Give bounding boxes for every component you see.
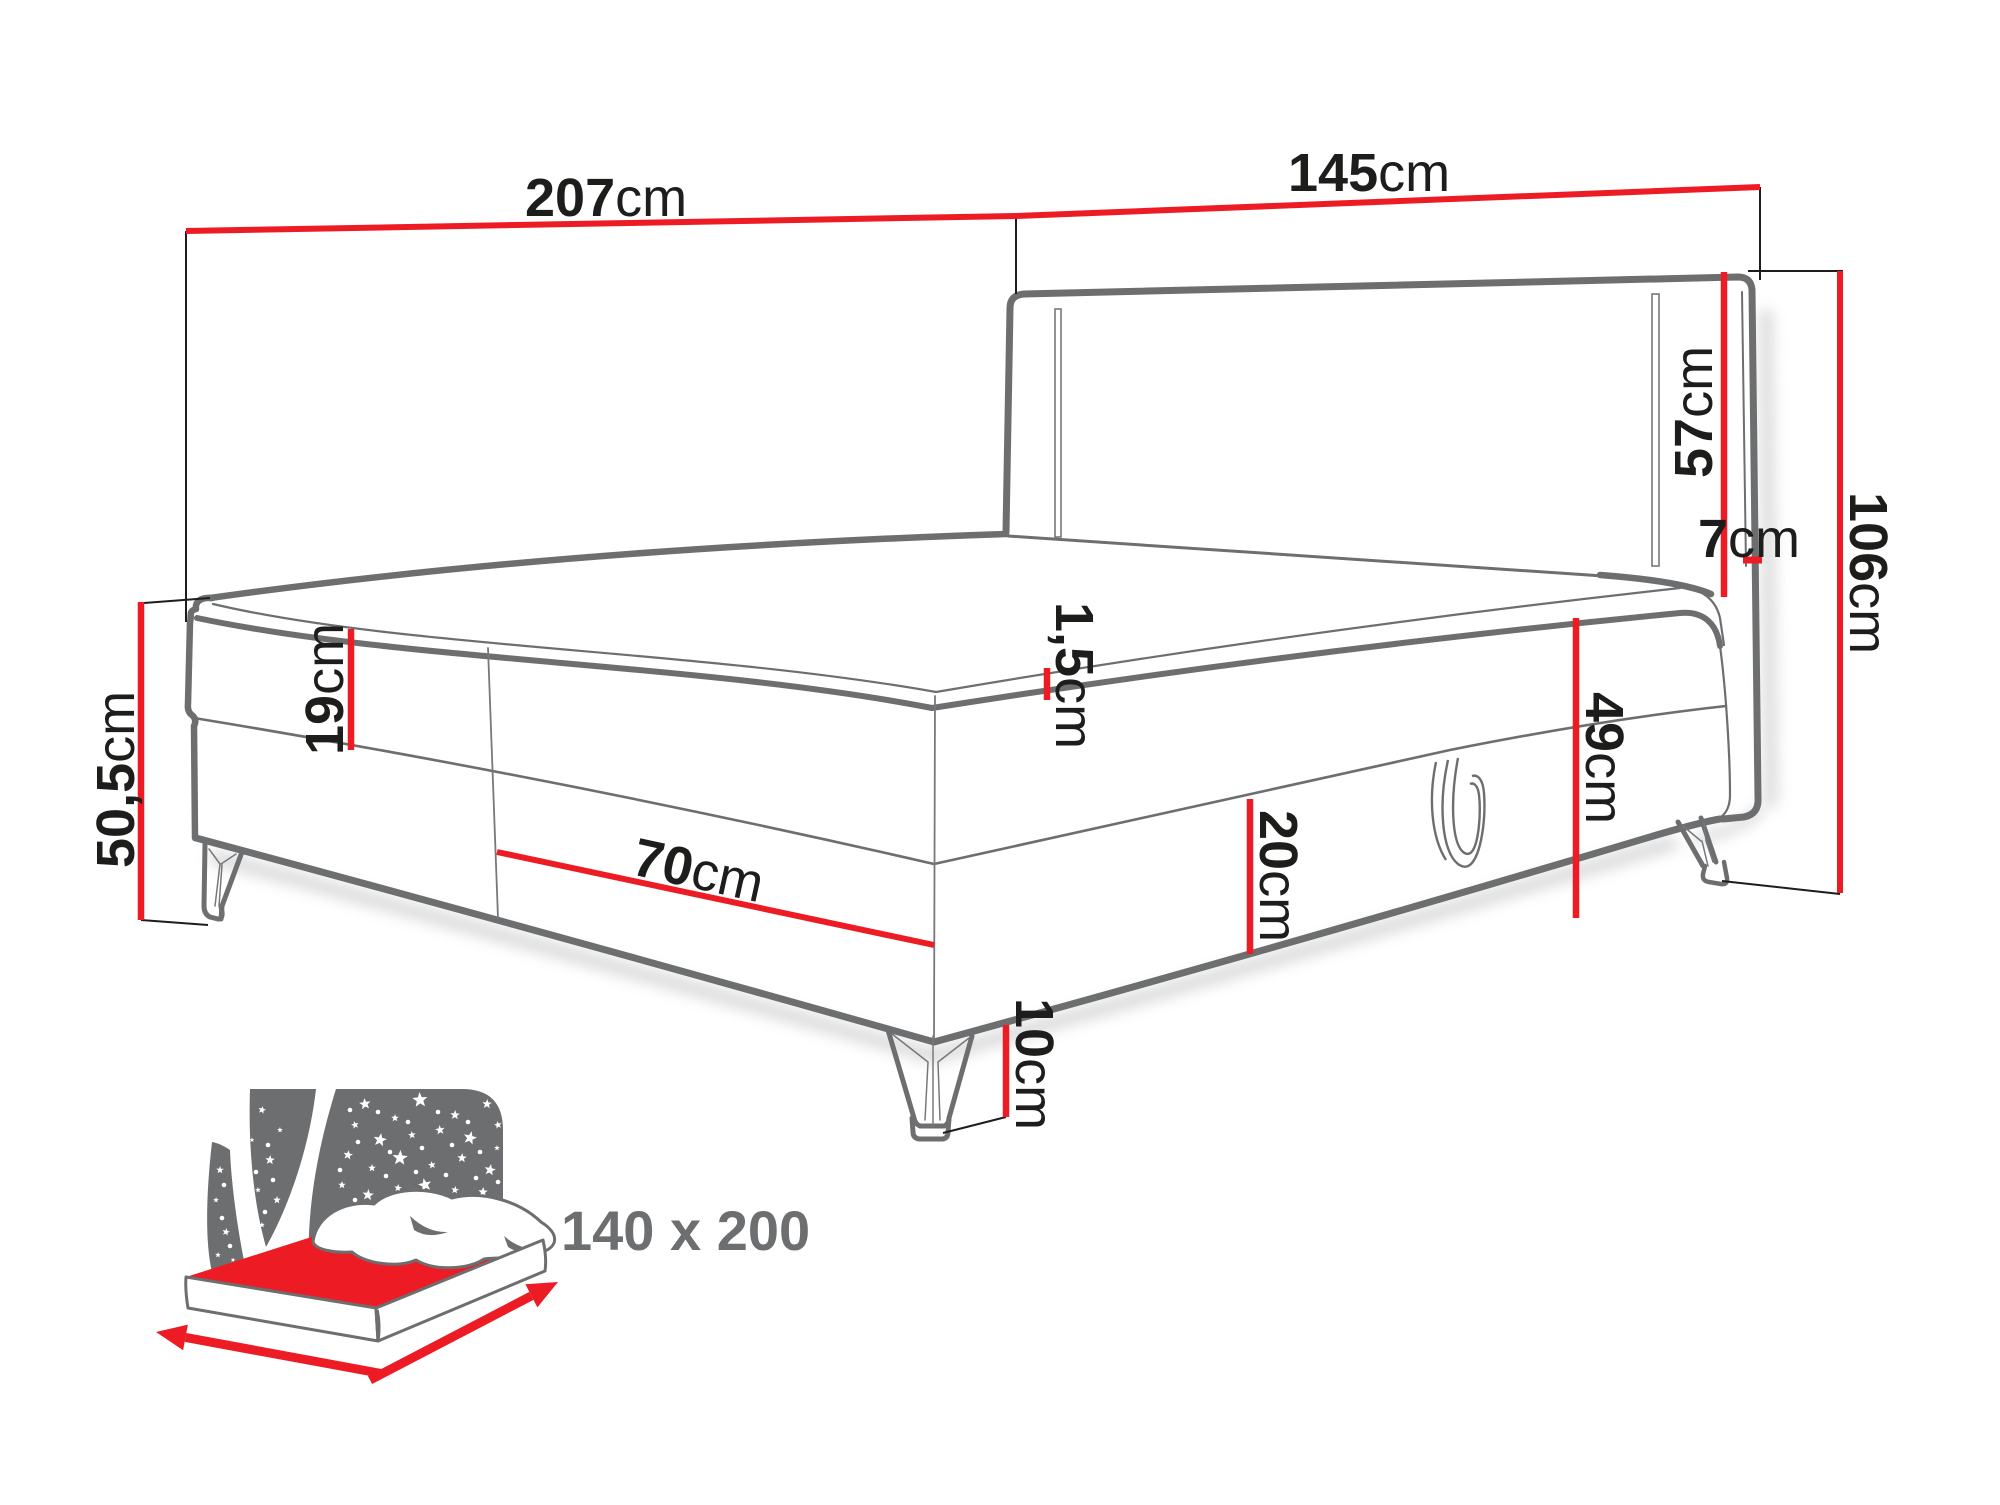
svg-text:207cm: 207cm	[525, 168, 687, 228]
svg-text:145cm: 145cm	[1288, 143, 1450, 203]
svg-text:106cm: 106cm	[1838, 492, 1898, 654]
svg-text:19cm: 19cm	[295, 623, 355, 755]
svg-text:7cm: 7cm	[1698, 509, 1800, 569]
svg-text:10cm: 10cm	[1004, 998, 1064, 1130]
svg-text:1,5cm: 1,5cm	[1044, 602, 1104, 749]
svg-text:50,5cm: 50,5cm	[86, 691, 146, 868]
svg-text:20cm: 20cm	[1248, 810, 1308, 942]
svg-text:140 x 200: 140 x 200	[561, 1199, 810, 1262]
svg-text:49cm: 49cm	[1574, 692, 1634, 824]
svg-text:57cm: 57cm	[1664, 346, 1724, 478]
